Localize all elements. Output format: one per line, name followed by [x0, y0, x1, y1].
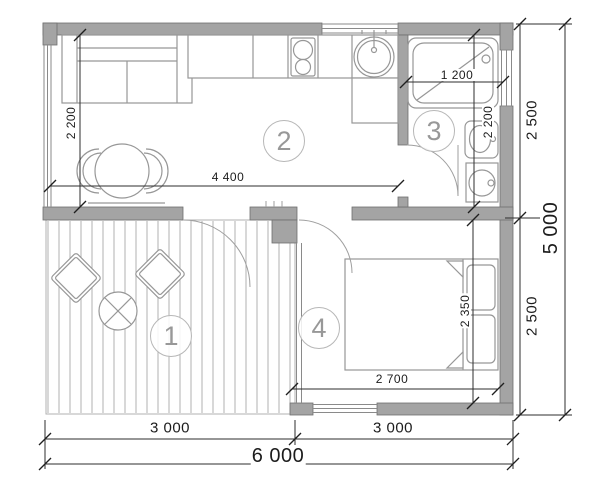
dim-bath-depth: 2 200 — [482, 105, 494, 140]
dim-right-upper: 2 500 — [525, 99, 540, 141]
toilet — [466, 163, 498, 202]
terrace-table — [99, 292, 137, 330]
entrance-door-arc — [183, 220, 250, 287]
dining-table-set — [77, 144, 168, 203]
dim-tub-length: 1 200 — [440, 69, 475, 81]
dim-living-width: 4 400 — [211, 171, 246, 183]
sofa — [62, 35, 192, 103]
dim-living-depth: 2 200 — [65, 106, 77, 141]
dim-total-width: 6 000 — [251, 446, 306, 466]
floor-plan: 1 2 3 4 2 200 4 400 1 200 2 200 2 500 2 … — [0, 0, 603, 502]
bed — [345, 259, 498, 370]
stove — [291, 38, 315, 76]
terrace-chair-1 — [51, 253, 102, 304]
dim-bottom-left: 3 000 — [149, 421, 191, 436]
dim-right-lower: 2 500 — [525, 295, 540, 337]
room-badge-living: 2 — [263, 120, 305, 162]
bathroom-door-arc — [407, 145, 458, 196]
room-badge-bathroom: 3 — [413, 110, 455, 152]
dim-bedroom-width: 2 700 — [375, 373, 410, 385]
bedroom-door-arc — [299, 220, 352, 273]
dining-table — [95, 144, 149, 198]
dim-bedroom-depth: 2 350 — [459, 294, 471, 329]
dim-bottom-right: 3 000 — [372, 421, 414, 436]
dim-total-height: 5 000 — [541, 201, 561, 256]
room-badge-bedroom: 4 — [298, 307, 340, 349]
room-badge-terrace: 1 — [150, 315, 192, 357]
plan-linework — [0, 0, 603, 502]
terrace-chair-2 — [135, 249, 186, 300]
